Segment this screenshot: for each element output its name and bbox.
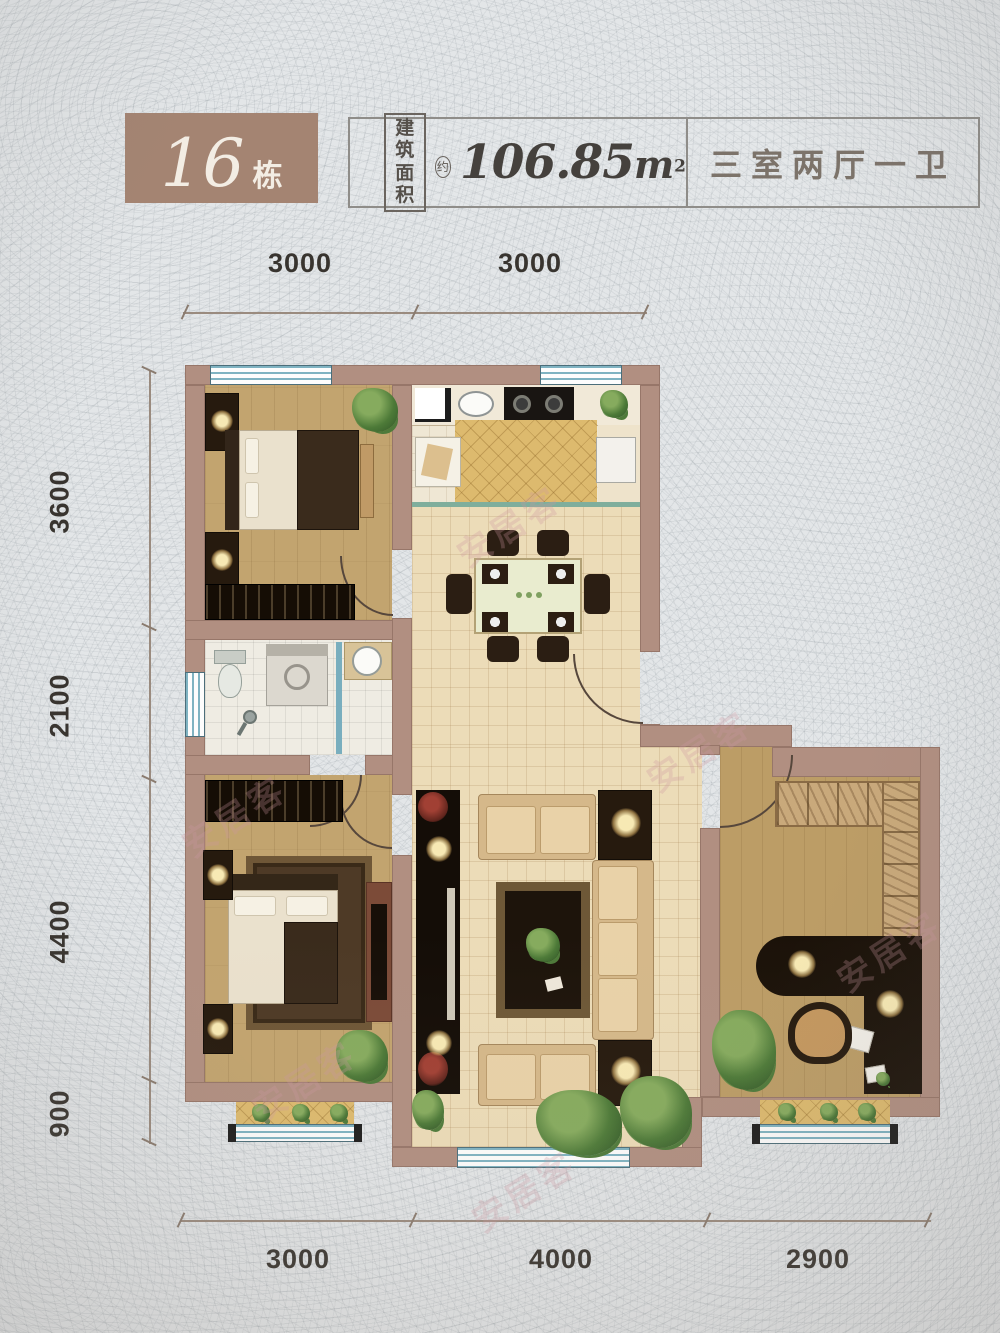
toilet-bowl [218,664,242,698]
area-superscript: 2 [674,156,686,176]
dim-left-3: 4400 [45,892,76,972]
bay-plant [330,1104,348,1122]
washer-panel [266,644,328,656]
wall-spine-b [392,618,412,795]
placemat [548,564,574,584]
blanket [297,430,359,530]
master-bay-window [228,1124,362,1142]
dim-left-2: 2100 [45,666,76,746]
sofa-cushion [540,806,590,854]
dim-top-1: 3000 [260,248,340,279]
bay-post [890,1124,898,1144]
area-unit: m [634,142,674,187]
dining-chair [537,636,569,662]
lamp [207,1018,229,1040]
master-tv [371,904,387,1000]
desk-lamp [788,950,816,978]
spotlight [426,1030,452,1056]
tv-screen [447,888,455,1020]
area-label: 建筑 面积 [384,113,426,213]
bay-post [228,1124,236,1142]
kitchen-sink [458,391,494,417]
blanket [284,922,338,1004]
toilet-tank [214,650,246,664]
washer-drum [284,664,310,690]
table-decor [516,592,522,598]
desk-chair [788,1002,852,1064]
area-label-line2: 面积 [395,163,414,206]
dining-chair [446,574,472,614]
spec-box: 建筑 面积 约 106.85m2 三室两厅一卫 [348,117,980,208]
area-value-group: 106.85m2 [460,139,686,187]
approx-mark: 约 [435,156,452,178]
building-number: 16 [161,134,245,193]
dim-bottom-1: 3000 [258,1244,338,1275]
placemat [548,612,574,632]
table-lamp [611,808,641,838]
lamp [211,549,233,571]
dining-chair [487,636,519,662]
floorplan-photo: 16 栋 建筑 面积 约 106.85m2 三室两厅一卫 3000 3000 3… [0,0,1000,1333]
dining-chair [537,530,569,556]
bed-headboard [225,430,239,530]
wall-bed2-bath [185,620,412,640]
kitchen-window [540,365,622,385]
dim-line-bottom [181,1220,931,1222]
layout-text: 三室两厅一卫 [710,140,956,186]
bay-plant [820,1103,838,1121]
washbasin [352,646,382,676]
wall-right-upper [640,385,660,652]
wall-bath-master-a [185,755,310,775]
building-number-box: 16 栋 [125,113,318,203]
dim-left-4: 900 [45,1074,76,1154]
sofa-cushion [598,866,638,920]
dim-bottom-3: 2900 [778,1244,858,1275]
bed-bench [360,444,374,518]
sofa-cushion [598,922,638,976]
pillow [234,896,276,916]
desk-lamp [876,990,904,1018]
bookshelf-top [775,781,897,827]
bay-plant [778,1103,796,1121]
pillow [245,438,259,474]
bay-plant [858,1103,876,1121]
sofa-cushion [486,806,536,854]
flower-arrangement [418,792,448,822]
bay-post [752,1124,760,1144]
area-label-line1: 建筑 [395,118,414,161]
layout-cell: 三室两厅一卫 [688,119,978,206]
lamp [211,410,233,432]
burner [545,395,563,413]
bathroom-window [185,672,205,737]
plant [412,1090,444,1130]
spotlight [426,836,452,862]
sofa-cushion [486,1054,536,1100]
desk-plant [876,1072,890,1086]
wall-spine-c [392,855,412,1147]
bedroom2-window [210,365,332,385]
wall-left [185,385,205,1102]
study-bay-window [752,1124,898,1144]
master-bed-headboard [228,874,338,890]
wardrobe [205,584,355,620]
area-cell: 建筑 面积 约 106.85m2 [350,119,688,206]
pillow [286,896,328,916]
dim-left-1: 3600 [45,462,76,542]
dim-line-left [149,370,151,1144]
sofa-cushion [598,978,638,1032]
range-hood [415,388,451,422]
dim-bottom-2: 4000 [521,1244,601,1275]
pillow [245,482,259,518]
bay-post [354,1124,362,1142]
fridge [596,437,636,483]
table-plant [526,928,560,962]
placemat [482,612,508,632]
dim-top-2: 3000 [490,248,570,279]
plant [600,390,628,418]
lamp [207,864,229,886]
flower-arrangement [418,1052,448,1086]
dining-chair [584,574,610,614]
burner [513,395,531,413]
wall-study-top [772,747,940,777]
building-unit: 栋 [252,160,282,193]
shower-divider [336,642,342,754]
area-value: 106.85 [460,135,634,190]
